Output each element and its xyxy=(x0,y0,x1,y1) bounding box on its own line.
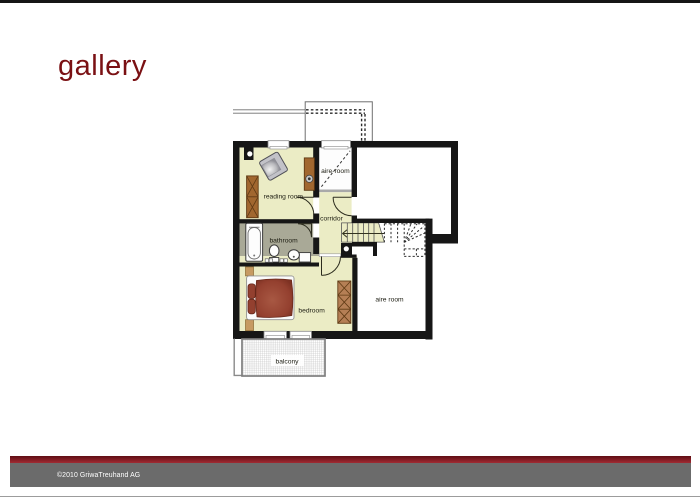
svg-text:balcony: balcony xyxy=(275,358,299,365)
svg-text:reading room: reading room xyxy=(264,193,304,200)
svg-text:bedroom: bedroom xyxy=(298,307,325,314)
svg-text:bathroom: bathroom xyxy=(269,238,298,245)
svg-text:aire room: aire room xyxy=(375,296,404,303)
svg-text:corridor: corridor xyxy=(320,216,343,223)
svg-text:aire-room: aire-room xyxy=(321,168,350,175)
